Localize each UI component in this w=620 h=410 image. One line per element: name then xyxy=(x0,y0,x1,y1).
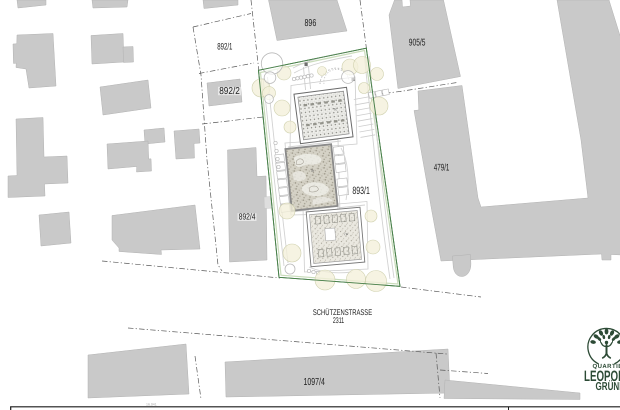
svg-text:896: 896 xyxy=(305,18,317,29)
svg-text:7a: 7a xyxy=(344,232,348,236)
svg-text:892/2: 892/2 xyxy=(219,86,240,97)
svg-text:893/1: 893/1 xyxy=(352,185,369,197)
svg-text:GRÜNE: GRÜNE xyxy=(596,380,620,393)
svg-text:7b: 7b xyxy=(310,169,314,173)
svg-text:16.041: 16.041 xyxy=(146,403,157,407)
svg-text:892/1: 892/1 xyxy=(217,40,232,51)
svg-text:892/4: 892/4 xyxy=(239,212,256,222)
svg-text:1097/4: 1097/4 xyxy=(304,377,326,388)
svg-text:479/1: 479/1 xyxy=(434,163,450,174)
svg-text:905/5: 905/5 xyxy=(409,38,426,49)
svg-text:2311: 2311 xyxy=(333,316,344,325)
